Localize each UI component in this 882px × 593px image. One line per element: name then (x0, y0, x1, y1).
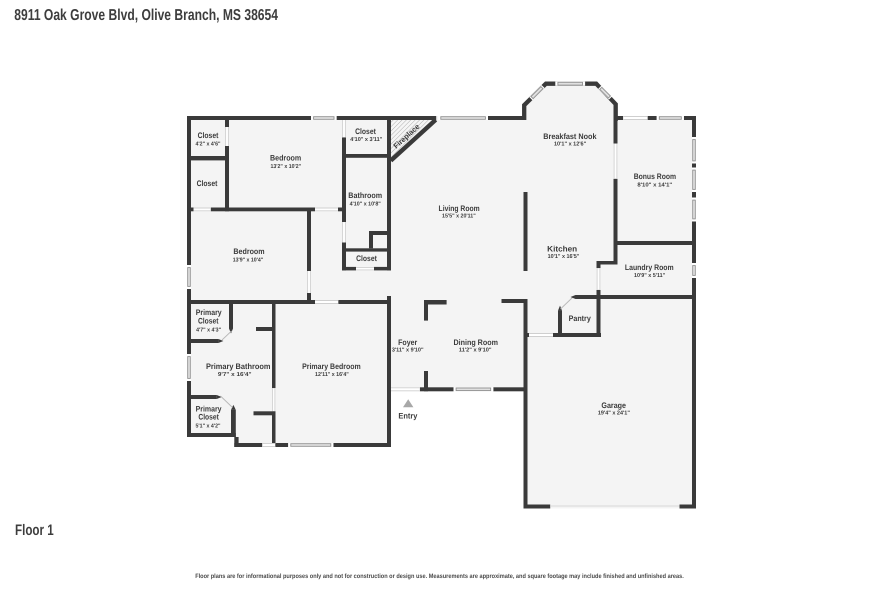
svg-text:Living Room: Living Room (439, 204, 480, 213)
svg-text:3'11" x 9'10": 3'11" x 9'10" (392, 347, 424, 353)
svg-text:5'1" x 4'2": 5'1" x 4'2" (196, 424, 221, 430)
svg-text:13'9" x 10'4": 13'9" x 10'4" (233, 258, 264, 264)
svg-text:Closet: Closet (198, 131, 219, 140)
svg-text:19'4" x 24'1": 19'4" x 24'1" (598, 411, 630, 417)
svg-text:9'7" x 16'4": 9'7" x 16'4" (218, 372, 252, 378)
svg-text:11'2" x 9'10": 11'2" x 9'10" (459, 347, 492, 353)
svg-text:15'5" x 20'11": 15'5" x 20'11" (442, 213, 476, 219)
svg-text:Bedroom: Bedroom (270, 154, 301, 163)
svg-text:4'2" x 4'6": 4'2" x 4'6" (196, 141, 221, 147)
svg-text:Closet: Closet (198, 317, 219, 326)
svg-text:8'10" x 14'1": 8'10" x 14'1" (637, 182, 672, 188)
svg-text:8911 Oak Grove Blvd, Olive Bra: 8911 Oak Grove Blvd, Olive Branch, MS 38… (14, 7, 278, 24)
svg-text:13'2" x 10'2": 13'2" x 10'2" (271, 164, 302, 170)
svg-text:Bathroom: Bathroom (348, 191, 382, 200)
svg-text:4'10" x 3'11": 4'10" x 3'11" (350, 137, 382, 143)
svg-text:10'9" x 5'11": 10'9" x 5'11" (634, 273, 665, 279)
svg-text:12'11" x 16'4": 12'11" x 16'4" (315, 372, 349, 378)
svg-text:Entry: Entry (398, 411, 418, 420)
svg-text:Dining Room: Dining Room (453, 338, 498, 347)
svg-text:4'7" x 4'3": 4'7" x 4'3" (196, 328, 221, 334)
svg-text:Bedroom: Bedroom (233, 247, 264, 256)
svg-text:10'1" x 12'6": 10'1" x 12'6" (554, 141, 586, 147)
svg-text:Bonus Room: Bonus Room (634, 172, 676, 181)
svg-text:Primary Bedroom: Primary Bedroom (302, 362, 361, 371)
svg-text:Closet: Closet (356, 254, 377, 263)
svg-text:Kitchen: Kitchen (547, 244, 577, 253)
svg-text:Foyer: Foyer (398, 338, 417, 347)
svg-text:Breakfast Nook: Breakfast Nook (543, 132, 597, 141)
svg-text:4'10" x 10'8": 4'10" x 10'8" (350, 202, 381, 208)
svg-text:Floor 1: Floor 1 (15, 522, 54, 539)
svg-text:Closet: Closet (197, 179, 218, 188)
svg-text:10'1" x 16'5": 10'1" x 16'5" (548, 254, 580, 260)
svg-text:Laundry Room: Laundry Room (625, 263, 674, 272)
svg-text:Primary Bathroom: Primary Bathroom (206, 362, 271, 371)
svg-text:Closet: Closet (355, 127, 376, 136)
svg-text:Garage: Garage (601, 401, 626, 410)
svg-text:Floor plans are for informatio: Floor plans are for informational purpos… (195, 573, 684, 580)
svg-text:Closet: Closet (198, 413, 219, 422)
svg-text:Pantry: Pantry (569, 314, 592, 323)
